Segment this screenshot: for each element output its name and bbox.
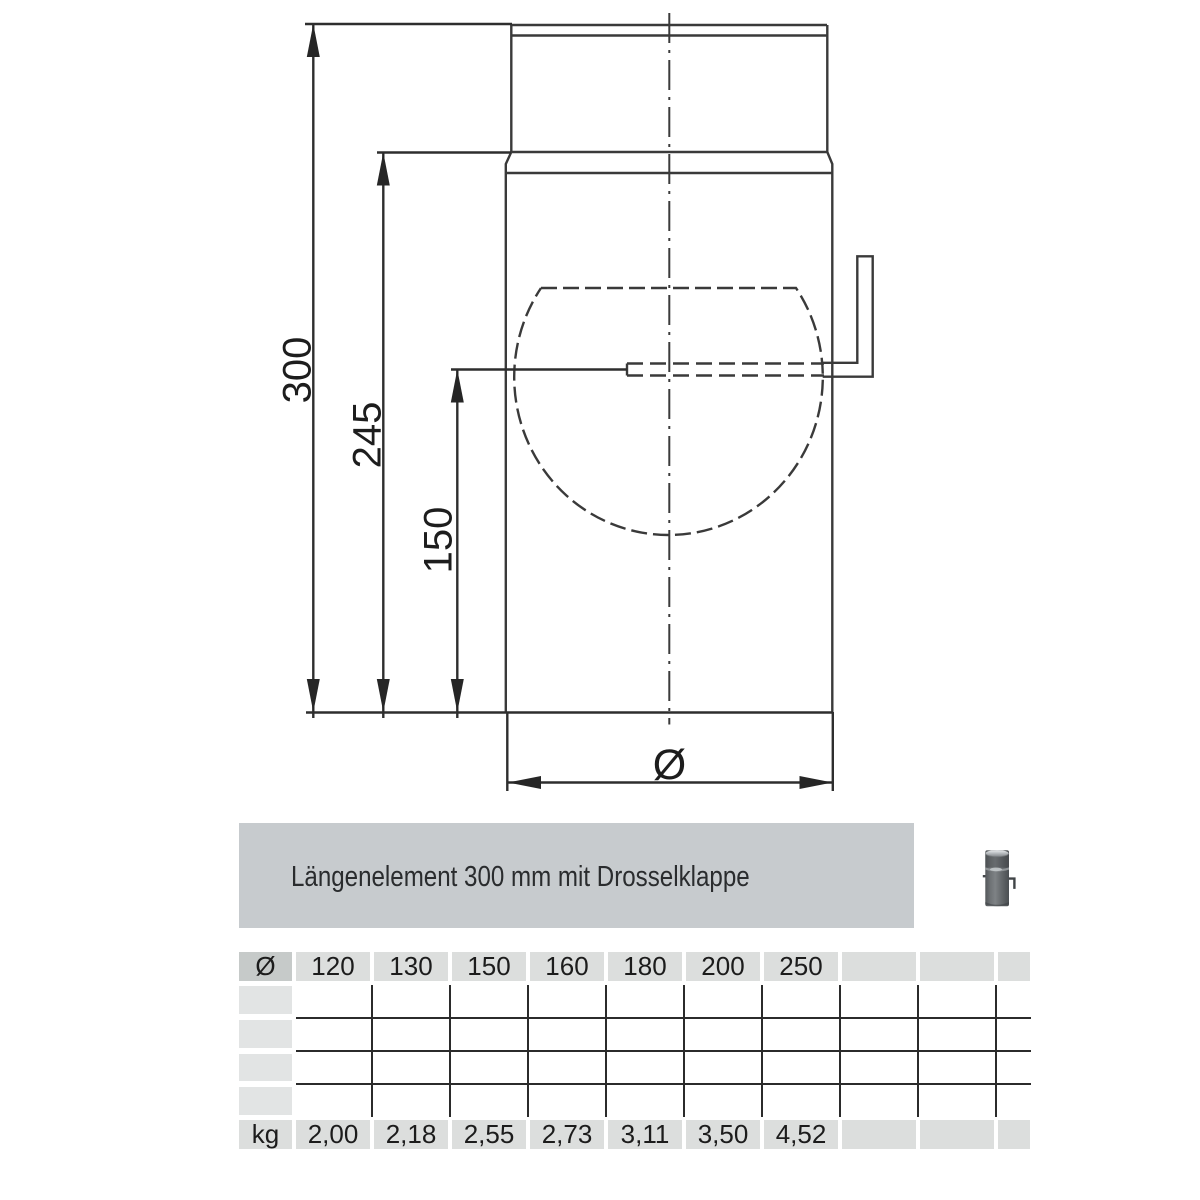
svg-text:245: 245	[346, 402, 390, 469]
svg-text:150: 150	[417, 507, 461, 574]
svg-text:Ø: Ø	[653, 741, 686, 789]
svg-text:300: 300	[276, 337, 320, 404]
